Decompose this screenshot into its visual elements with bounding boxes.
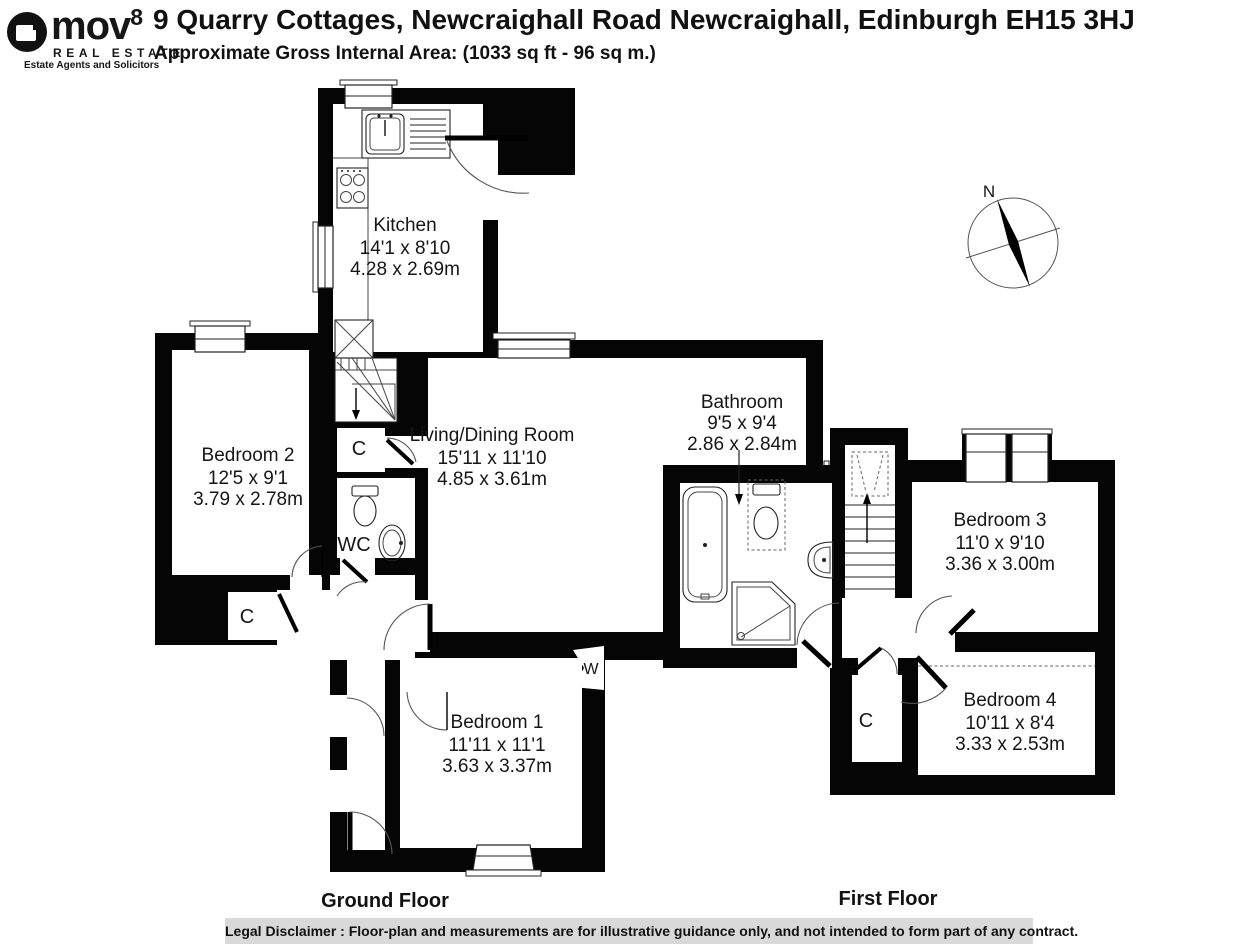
kitchen-label: Kitchen	[373, 215, 436, 236]
bedroom4-dim-metric: 3.33 x 2.53m	[955, 734, 1065, 755]
bedroom2-label: Bedroom 2	[202, 445, 295, 466]
bedroom3-dim-metric: 3.36 x 3.00m	[945, 554, 1055, 575]
bedroom1-dim-metric: 3.63 x 3.37m	[442, 756, 552, 777]
wc-label: WC	[337, 534, 370, 556]
living-label: Living/Dining Room	[410, 425, 575, 446]
floorplan-svg: Kitchen 14'1 x 8'10 4.28 x 2.69m Living/…	[0, 0, 1248, 944]
bathroom-dim-metric: 2.86 x 2.84m	[687, 434, 797, 455]
living-dim-imperial: 15'11 x 11'10	[437, 448, 546, 469]
entrance-opening	[330, 770, 347, 812]
first-floor-plan: Bathroom 9'5 x 9'4 2.86 x 2.84m Bedroom …	[663, 392, 1115, 795]
bedroom2-dim-metric: 3.79 x 2.78m	[193, 489, 303, 510]
compass-north-label: N	[983, 182, 995, 201]
first-floor-title: First Floor	[839, 888, 938, 911]
bedroom3-label: Bedroom 3	[954, 510, 1047, 531]
living-dim-metric: 4.85 x 3.61m	[437, 469, 547, 490]
window-bedroom1-bottom	[466, 845, 541, 876]
floorplan-page: mov8 REAL ESTATE Estate Agents and Solic…	[0, 0, 1248, 944]
hallway	[330, 575, 415, 660]
kitchen-door-opening	[483, 140, 498, 220]
bedroom2-dim-imperial: 12'5 x 9'1	[208, 468, 288, 489]
ground-floor-title: Ground Floor	[321, 890, 449, 913]
window-kitchen-left	[313, 222, 333, 292]
bedroom3-dim-imperial: 11'0 x 9'10	[955, 533, 1044, 554]
closet-ff-label: C	[859, 710, 873, 732]
bedroom4-label: Bedroom 4	[964, 690, 1057, 711]
legal-disclaimer: Legal Disclaimer : Floor-plan and measur…	[225, 918, 1033, 944]
window-kitchen-top	[340, 80, 397, 108]
hall-pocket	[277, 590, 330, 645]
corridor-door-opening	[330, 695, 347, 737]
bedroom2-door-opening	[290, 575, 322, 591]
wardrobe-label: W	[583, 661, 599, 678]
hall-living-opening	[413, 600, 430, 652]
corridor	[347, 655, 385, 850]
bedroom1-label: Bedroom 1	[451, 712, 544, 733]
closet2-label: C	[240, 606, 254, 628]
bedroom4-dim-imperial: 10'11 x 8'4	[965, 713, 1055, 734]
window-living-top	[493, 333, 575, 358]
kitchen-dim-imperial: 14'1 x 8'10	[360, 238, 451, 259]
bathroom-label: Bathroom	[701, 392, 783, 413]
bedroom1-dim-imperial: 11'11 x 11'1	[448, 735, 545, 756]
closet1-label: C	[352, 438, 366, 460]
window-bedroom2	[190, 321, 250, 352]
compass-icon: N	[966, 182, 1060, 288]
bathroom-dim-imperial: 9'5 x 9'4	[707, 413, 777, 434]
kitchen-dim-metric: 4.28 x 2.69m	[350, 259, 460, 280]
